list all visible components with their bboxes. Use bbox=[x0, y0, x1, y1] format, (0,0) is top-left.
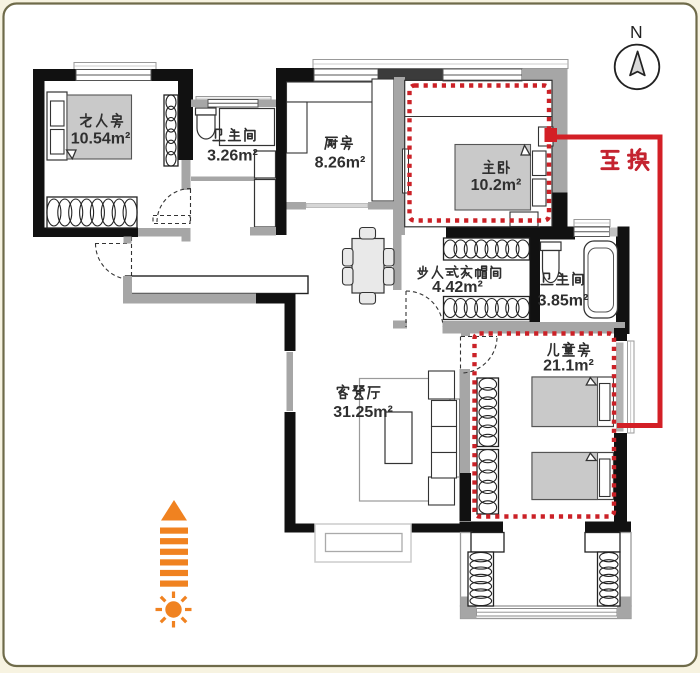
svg-text:3.85m²: 3.85m² bbox=[538, 293, 589, 310]
svg-text:8.26m²: 8.26m² bbox=[315, 155, 366, 172]
svg-text:21.1m²: 21.1m² bbox=[543, 358, 594, 375]
svg-text:N: N bbox=[630, 22, 643, 42]
svg-text:10.2m²: 10.2m² bbox=[471, 177, 522, 194]
svg-text:10.54m²: 10.54m² bbox=[71, 131, 131, 148]
svg-text:3.26m²: 3.26m² bbox=[207, 148, 258, 165]
svg-text:31.25m²: 31.25m² bbox=[333, 404, 393, 421]
svg-text:4.42m²: 4.42m² bbox=[432, 279, 483, 296]
